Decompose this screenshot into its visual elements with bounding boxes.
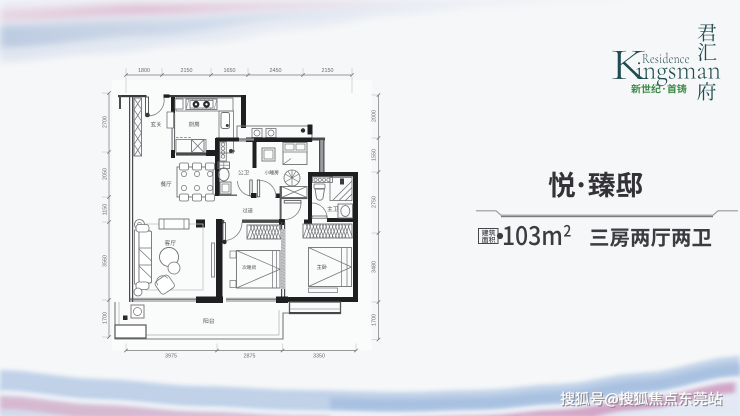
svg-text:3975: 3975 xyxy=(165,354,177,360)
svg-text:2450: 2450 xyxy=(270,68,282,74)
svg-text:1550: 1550 xyxy=(372,149,378,161)
svg-text:1700: 1700 xyxy=(372,314,378,326)
svg-text:1650: 1650 xyxy=(224,68,236,74)
svg-text:1150: 1150 xyxy=(103,204,109,216)
svg-text:1800: 1800 xyxy=(138,68,150,74)
svg-text:1700: 1700 xyxy=(103,312,109,324)
svg-text:3560: 3560 xyxy=(103,255,109,267)
svg-text:2875: 2875 xyxy=(244,354,256,360)
svg-text:2750: 2750 xyxy=(372,196,378,208)
svg-text:3480: 3480 xyxy=(372,261,378,273)
svg-text:2150: 2150 xyxy=(322,68,334,74)
svg-text:2050: 2050 xyxy=(103,168,109,180)
svg-text:2150: 2150 xyxy=(181,68,193,74)
svg-text:2700: 2700 xyxy=(103,116,109,128)
svg-text:3350: 3350 xyxy=(313,354,325,360)
svg-text:2000: 2000 xyxy=(372,110,378,122)
